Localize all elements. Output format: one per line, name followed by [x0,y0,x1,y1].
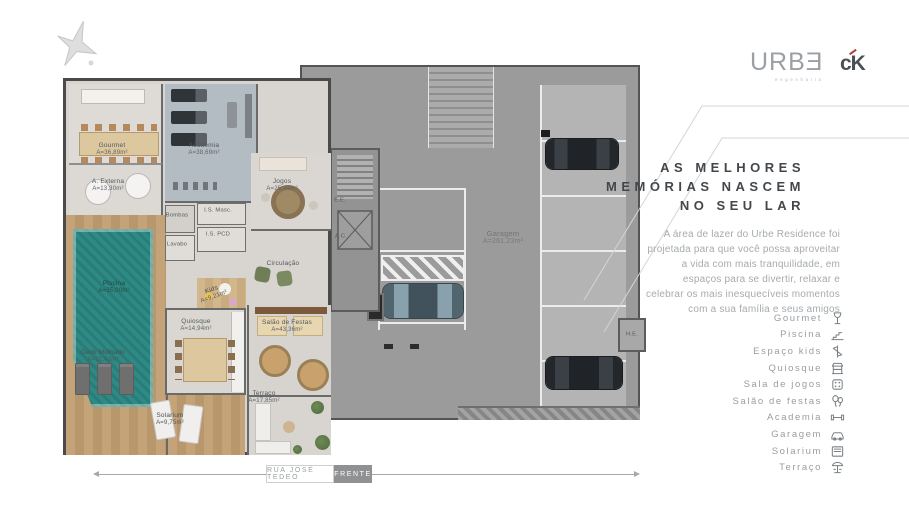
amenity-label: Piscina [780,329,822,340]
room-label-piscina: Piscina A=35,00m² [98,280,129,296]
sun-lounger [97,363,112,395]
amenities-list: GourmetPiscinaEspaço kidsQuiosqueSala de… [733,310,846,476]
garage-ramp [428,67,494,148]
frente-badge: FRENTE [334,465,372,483]
quiosque-chairs [228,340,235,380]
quiosque-table [183,338,227,382]
dining-table [259,345,291,377]
coffee-table [283,421,295,433]
amenity-label: Espaço kids [753,346,822,357]
amenity-row: Terraço [733,459,846,476]
gourmet-chairs [81,124,157,131]
room-label-deck-molhado: Deck Molhado A=12,42m² [81,349,125,365]
room-label-garagem: Garagem A=261,23m² [483,229,523,247]
shelf [259,157,307,171]
room-label-is-pcd: I.S. PCD [206,231,230,238]
toy-icon [830,344,845,359]
amenity-row: Solarium [733,443,846,460]
balloons-icon [830,394,845,409]
plant [293,445,302,454]
salao-bar [255,307,327,314]
amenity-row: Sala de jogos [733,376,846,393]
headline: AS MELHORES MEMÓRIAS NASCEM NO SEU LAR [606,158,805,215]
stall-line [378,322,466,324]
no-parking-hatch [381,255,465,281]
amenity-label: Gourmet [774,313,822,324]
amenity-row: Salão de festas [733,393,846,410]
stairs [337,155,373,199]
urbe-logo-text: URBƎ [750,50,823,75]
amenity-row: Gourmet [733,310,846,327]
room-label-a-externa: A. Externa A=13,30m² [92,178,124,194]
parked-car-bottom [546,357,622,389]
floor-marker [410,344,419,349]
dining-table [297,359,329,391]
outdoor-table [125,173,151,199]
floor-marker [384,344,393,349]
amenity-row: Espaço kids [733,343,846,360]
amenity-row: Quiosque [733,360,846,377]
weight-rack [245,94,252,138]
street-name: RUA JOSÉ TEDEO [267,467,333,481]
sofa [255,441,291,454]
sun-lounger [119,363,134,395]
treadmill [171,111,207,124]
toy-ball [229,298,237,306]
amenity-label: Solarium [772,446,822,457]
room-label-he: H.E. [626,331,638,338]
room-label-quiosque: Quiosque A=14,94m² [180,318,211,334]
urbe-logo: URBƎ engenharia [750,50,823,82]
treadmill [171,89,207,102]
pouf [276,270,293,287]
sidewalk-hatch [458,406,640,420]
room-label-ee: E.E. [334,197,346,204]
sun-lounger [75,363,90,395]
frente-label: FRENTE [334,471,372,478]
headline-line3: NO SEU LAR [606,196,805,215]
weights-row [173,182,217,190]
room-label-is-masc: I.S. Masc. [204,207,232,214]
stall-line [378,188,466,190]
quiosque-chairs [175,340,182,380]
ck-logo-text: cK [840,52,865,75]
room-label-gourmet: Gourmet A=36,89m² [96,142,127,158]
gym-bench [227,102,237,128]
room-label-bombas: Bombas [166,212,188,219]
north-compass-icon [48,16,104,72]
page: Gourmet A=36,89m² A. Externa A=13,30m² A… [0,0,909,513]
stool [261,193,270,202]
amenity-label: Quiosque [769,363,822,374]
game-die-icon [830,377,845,392]
amenity-label: Salão de festas [733,396,823,407]
street-name-box: RUA JOSÉ TEDEO [266,465,334,483]
pool-steps-icon [830,327,845,342]
amenity-label: Terraço [779,462,822,473]
wheel-stop [541,130,550,137]
amenity-label: Sala de jogos [744,379,822,390]
room-label-solarium: Solarium A=9,75m² [156,412,184,428]
room-label-jogos: Jogos A=25,44m² [266,178,297,194]
urbe-logo-subtext: engenharia [750,77,823,82]
stool [309,201,318,210]
kiosk-icon [830,361,845,376]
headline-line1: AS MELHORES [606,158,805,177]
room-label-lavabo: Lavabo [167,241,187,248]
wine-glass-icon [830,311,845,326]
gourmet-counter [81,89,145,104]
stall-line [378,250,466,252]
pouf [254,266,271,283]
lounger-icon [830,444,845,459]
room-label-terraco: Terraço A=17,85m² [248,390,279,406]
elevator-shaft [337,210,373,250]
amenity-label: Academia [767,412,822,423]
parked-car-blue [383,284,463,318]
sofa [255,403,271,441]
amenity-row: Garagem [733,426,846,443]
dimension-arrow-right [634,471,640,477]
stair-elevator-core [330,148,380,312]
parasol-icon [830,460,845,475]
amenity-row: Piscina [733,327,846,344]
plant [311,401,324,414]
amenity-label: Garagem [771,429,822,440]
dumbbell-icon [830,410,845,425]
stall-line [542,305,626,307]
room-label-salao-festas: Salão de Festas A=43,36m² [262,319,312,335]
headline-line2: MEMÓRIAS NASCEM [606,177,805,196]
stall-line [542,250,626,252]
room-label-academia: Academia A=38,69m² [188,142,219,158]
car-icon [830,427,845,442]
ck-logo: cK [840,53,909,74]
plant [315,435,330,450]
room-label-circulacao: Circulação [267,260,300,268]
room-label-ac: A.C. [335,233,347,240]
amenity-row: Academia [733,410,846,427]
intro-paragraph: A área de lazer do Urbe Residence foi pr… [644,227,840,317]
